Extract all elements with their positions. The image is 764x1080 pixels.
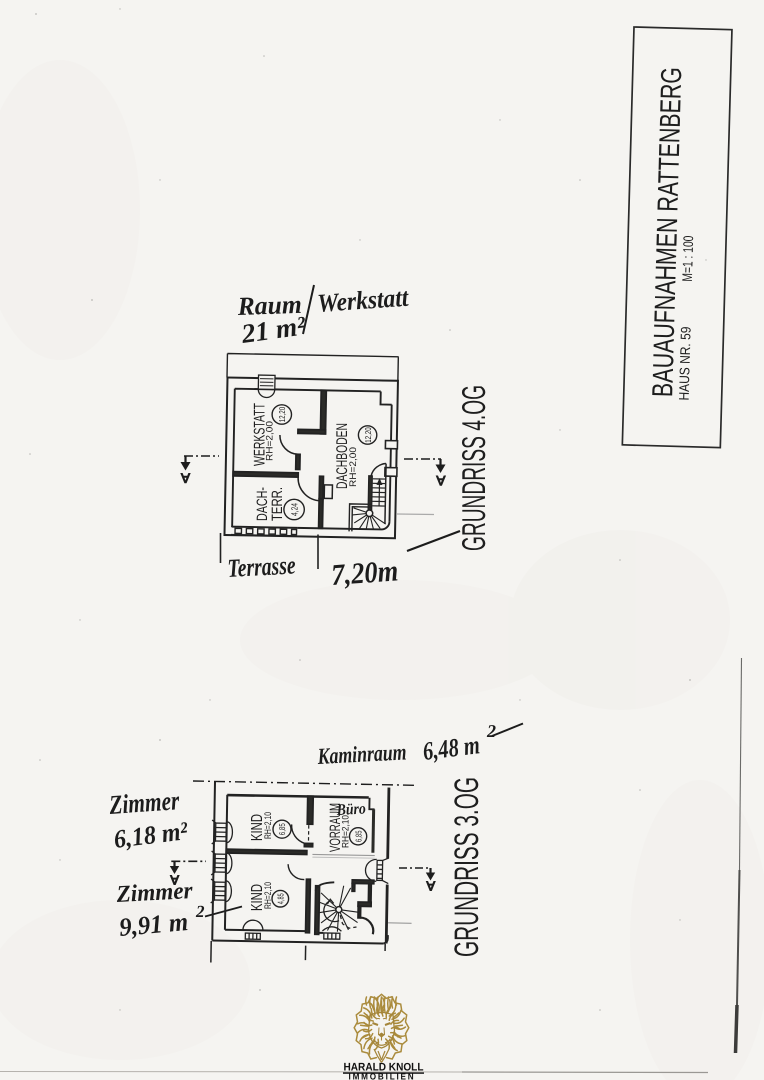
svg-text:2: 2 [486, 721, 496, 741]
svg-text:Büro: Büro [335, 801, 366, 820]
svg-text:RH=2,10: RH=2,10 [263, 812, 274, 839]
svg-text:M=1 : 100: M=1 : 100 [679, 235, 696, 282]
svg-text:A: A [426, 879, 435, 894]
svg-text:9,91 m: 9,91 m [118, 907, 189, 942]
svg-text:7,20m: 7,20m [330, 554, 399, 592]
svg-text:2: 2 [195, 902, 205, 921]
svg-text:Terrasse: Terrasse [227, 550, 296, 583]
svg-text:12,20: 12,20 [363, 427, 373, 443]
svg-text:RH=2,00: RH=2,00 [265, 421, 276, 461]
svg-text:A: A [170, 873, 179, 888]
svg-text:Zimmer: Zimmer [115, 878, 194, 908]
svg-text:4,24: 4,24 [289, 503, 299, 516]
svg-text:GRUNDRISS 3.OG: GRUNDRISS 3.OG [448, 777, 486, 957]
svg-text:IMMOBILIEN: IMMOBILIEN [349, 1072, 416, 1080]
svg-text:12,20: 12,20 [277, 407, 287, 423]
svg-text:A: A [181, 471, 190, 486]
svg-text:HAUS NR. 59: HAUS NR. 59 [676, 326, 694, 401]
svg-text:6,85: 6,85 [277, 823, 287, 835]
svg-text:A: A [436, 473, 445, 488]
svg-text:GRUNDRISS 4.OG: GRUNDRISS 4.OG [455, 385, 492, 551]
svg-text:TERR.: TERR. [269, 487, 286, 521]
svg-text:Kaminraum: Kaminraum [316, 739, 407, 769]
svg-text:4,85: 4,85 [276, 893, 286, 904]
svg-text:RH=2,00: RH=2,00 [348, 447, 359, 487]
svg-text:Zimmer: Zimmer [108, 785, 181, 820]
svg-text:RH=2,10: RH=2,10 [341, 815, 352, 848]
svg-text:6,85: 6,85 [353, 830, 363, 842]
